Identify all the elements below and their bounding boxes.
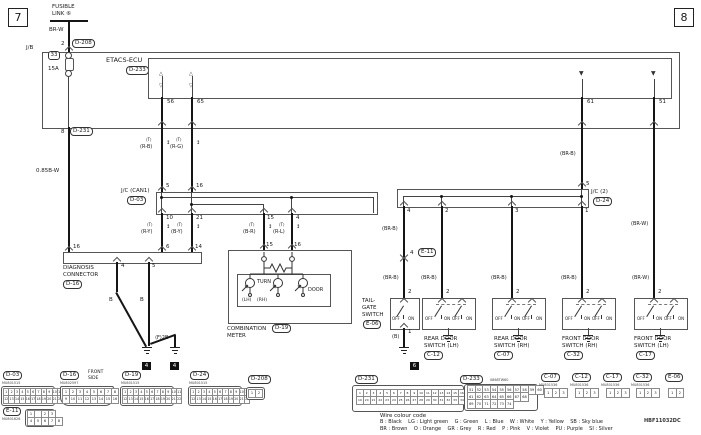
on-label: ON — [466, 317, 472, 322]
junction-dot — [290, 196, 293, 199]
junction-dot — [440, 195, 443, 198]
junction-dot — [510, 195, 513, 198]
connector-code: MU801515 — [189, 381, 207, 385]
contact-tick — [511, 315, 512, 319]
tailgate-pin-2: 2 — [408, 289, 412, 295]
wire-color-label: (R-B) — [140, 145, 152, 151]
contact-tick — [601, 315, 602, 319]
ground-stem — [448, 328, 449, 335]
jc2-pin-4: 4 — [407, 208, 411, 214]
connector-ref-d16: D-16 — [63, 280, 82, 289]
pin-grid: 45678 — [27, 417, 62, 426]
wire-color-label: B — [140, 297, 144, 303]
connector-ref-d208: D-208 — [72, 39, 95, 48]
door-wire — [581, 206, 583, 298]
fusible-link-label2: LINK ⑥ — [52, 11, 71, 17]
connector-label-e11: E-11 — [3, 407, 21, 416]
driver-output-icon: ▼ — [579, 71, 584, 77]
off-label: OFF — [495, 317, 503, 322]
on-label: ON — [678, 317, 684, 322]
twist-icon: ⟨T⟩ — [176, 138, 182, 143]
connector-label-d03: D-03 — [3, 371, 22, 380]
pin-grid: 12 — [668, 388, 683, 398]
diag-pin-5: 5 — [152, 263, 156, 269]
e11-pin-label: 4 — [410, 250, 414, 256]
connector-label-d24: D-24 — [190, 371, 209, 380]
connector-label-d231: D-231 — [355, 375, 378, 384]
pin-grid: 192021222324252627282930313233343536 — [356, 396, 478, 405]
on-label: ON — [536, 317, 542, 322]
connector-ref-c32: C-32 — [564, 351, 583, 360]
door-switch-name2: SWITCH (LH) — [424, 343, 459, 349]
door-pin-2: 2 — [446, 289, 450, 295]
can-wire — [161, 97, 163, 192]
contact-tick — [653, 315, 654, 319]
on-label: ON — [584, 317, 590, 322]
meter-circuit-graphic — [238, 252, 338, 308]
door-switch-box — [634, 298, 688, 330]
legend-line2: BR : Brown O : Orange GR : Grey R : Red … — [380, 427, 613, 433]
off-label: OFF — [592, 317, 600, 322]
connector-ref-c12: C-12 — [424, 351, 443, 360]
can-wire — [191, 97, 193, 192]
pin-grid: 1213141516171819202122 — [3, 395, 62, 404]
door-switch-name2: SWITCH (RH) — [562, 343, 598, 349]
wire-color-label: (BR-W) — [631, 222, 648, 228]
connector-ref-d03: D-03 — [127, 196, 146, 205]
pin-grid: 123 — [575, 388, 598, 398]
signal-arrow-icon: ▽ — [189, 84, 193, 89]
connector-label-c07: C-07 — [541, 373, 560, 382]
jc1-pin-21: 21 — [196, 215, 203, 221]
door-wire — [441, 206, 443, 298]
diag-pin-16: 16 — [73, 244, 80, 250]
off-label: OFF — [452, 317, 460, 322]
connector-label-d16: D-16 — [60, 371, 79, 380]
twist-icon: ⟨T⟩ — [279, 223, 285, 228]
off-label: OFF — [664, 317, 672, 322]
connector-label-d208: D-208 — [248, 375, 271, 384]
connector-code: MU801536 — [570, 383, 588, 387]
jc1-internal-bus — [162, 197, 374, 198]
legend-line1: B : Black LG : Light green G : Green L :… — [380, 420, 603, 426]
connector-label-c12: C-12 — [572, 373, 591, 382]
driver-output-icon: ▼ — [651, 71, 656, 77]
connector-code: MU801536 — [539, 383, 557, 387]
f2b-label: ⟨F⟩2B — [155, 336, 168, 342]
wire-color-label: (BR-W) — [632, 276, 649, 282]
ecu-pin-56: 56 — [167, 99, 174, 105]
tailgate-label2: GATE — [362, 305, 376, 311]
wiring-diagram-page: 7 8 FUSIBLE LINK ⑥ BR-W 2 D-208 J/B 33 1… — [0, 0, 701, 435]
twist-icon: ⟨T⟩ — [146, 138, 152, 143]
pin-grid: 1213141516171819202122 — [190, 395, 249, 404]
connector-ref-c17: C-17 — [636, 351, 655, 360]
jc1-pin-15: 15 — [267, 215, 274, 221]
doc-code: HBF11032DC — [644, 419, 681, 425]
twist-icon: ⟨T⟩ — [177, 223, 183, 228]
inline-connector-icon — [400, 257, 408, 265]
wire-color-label: (R-G) — [170, 145, 183, 151]
signal-arrow-icon: ▽ — [159, 84, 163, 89]
connector-label-c32: C-32 — [633, 373, 652, 382]
twist-span-arrow-icon: ↕ — [166, 225, 170, 231]
twist-span-arrow-icon: ↕ — [268, 225, 272, 231]
signal-arrow-icon: △ — [189, 72, 193, 77]
tailgate-pin-1: 1 — [408, 329, 412, 335]
jc2-pin-5: 5 — [586, 181, 590, 187]
ground-point-badge: 4 — [170, 362, 179, 370]
connector-code: 0868TW60 — [490, 378, 508, 382]
jc1-pin-5: 5 — [166, 183, 170, 189]
connector-ref-e06: E-06 — [363, 320, 381, 329]
junction-dot — [190, 203, 193, 206]
twist-span-arrow-icon: ↕ — [196, 141, 200, 147]
door-indicator-label: DOOR — [308, 288, 323, 294]
connector-label-c17: C-17 — [603, 373, 622, 382]
ground-stem — [588, 328, 589, 335]
connector-code: MU801515 — [2, 381, 20, 385]
ground-stem — [660, 328, 661, 335]
door-switch-name2: SWITCH (LH) — [634, 343, 669, 349]
meter-label1: COMBINATION — [227, 326, 266, 332]
connector-code: MU801536 — [601, 383, 619, 387]
page-tab-right: 8 — [674, 8, 694, 27]
page-tab-left: 7 — [8, 8, 28, 27]
connector-label-d19: D-19 — [122, 371, 141, 380]
door-switch-name2: SWITCH (RH) — [494, 343, 530, 349]
turn-indicator-label: TURN — [257, 280, 271, 286]
jb-label: J/B — [26, 45, 33, 51]
connector-ref-e11: E-11 — [418, 248, 436, 257]
pin-grid: 123 — [636, 388, 659, 398]
connector-ref-d233: D-233 — [126, 66, 149, 75]
ecu-pin-65: 65 — [197, 99, 204, 105]
pin-grid: 697071727374 — [467, 399, 513, 409]
ecu-pin-51: 51 — [659, 99, 666, 105]
junction-dot — [160, 196, 163, 199]
wire-color-label: (BR-B) — [382, 227, 398, 233]
jc2-label: J/C (2) — [591, 189, 608, 195]
door-switch-box — [492, 298, 546, 330]
pin-grid: 910111213141516 — [62, 395, 118, 404]
door-switch-name1: REAR DOOR — [424, 336, 457, 342]
jc2-pin-1: 1 — [585, 208, 589, 214]
on-label: ON — [444, 317, 450, 322]
front-side-note1: FRONT — [88, 370, 103, 375]
door-switch-box — [562, 298, 616, 330]
connector-ref-d231: D-231 — [70, 127, 93, 136]
tailgate-label3: SWITCH — [362, 312, 384, 318]
ecu-pin-61: 61 — [587, 99, 594, 105]
jc1-internal-bus2 — [192, 204, 264, 205]
etacs-ecu-label: ETACS-ECU — [106, 57, 142, 64]
jc2-box — [397, 189, 589, 208]
wire-color-label: B — [109, 297, 113, 303]
wire-085bw — [68, 127, 70, 252]
on-label: ON — [514, 317, 520, 322]
contact-tick — [673, 315, 674, 319]
pin-grid: 1213141516171819202122 — [122, 395, 181, 404]
fuse-body — [65, 58, 74, 71]
off-label: OFF — [637, 317, 645, 322]
jc1-pin-10: 10 — [166, 215, 173, 221]
connector-code: MU802597 — [60, 381, 78, 385]
wire-br-w-label: BR-W — [49, 27, 64, 33]
on-label: ON — [656, 317, 662, 322]
ground-wire-b2 — [148, 262, 150, 346]
ground-stem — [518, 328, 519, 335]
wire-color-label: (BR-B) — [383, 276, 399, 282]
connector-ref-c07: C-07 — [494, 351, 513, 360]
door-switch-box — [422, 298, 476, 330]
etacs-ecu-inner-box — [148, 58, 672, 99]
meter-label2: METER — [227, 333, 246, 339]
jc-can1-label: J/C (CAN1) — [121, 188, 150, 194]
jc2-pin-3: 3 — [515, 208, 519, 214]
off-label: OFF — [522, 317, 530, 322]
connector-label-d233: D-233 — [460, 375, 483, 384]
connector-code: MU801515 — [121, 381, 139, 385]
connector-ref-d19: D-19 — [272, 324, 291, 333]
jc1-pin-16: 16 — [196, 183, 203, 189]
twist-span-arrow-icon: ↕ — [296, 225, 300, 231]
wire-color-label: (BR-B) — [421, 276, 437, 282]
off-label: OFF — [565, 317, 573, 322]
connector-ref-d24: D-24 — [593, 197, 612, 206]
fusible-link-label: FUSIBLE — [52, 4, 75, 10]
wire-085bw-label: 0.85B-W — [36, 168, 59, 174]
wire-color-label: (B-R) — [243, 230, 256, 236]
wire-color-label: (BR-B) — [491, 276, 507, 282]
door-pin-2: 2 — [658, 289, 662, 295]
pin-grid: 123 — [606, 388, 629, 398]
door-pin-2: 2 — [586, 289, 590, 295]
ground-point-badge: 6 — [410, 362, 419, 370]
door-switch-name1: FRONT DOOR — [562, 336, 599, 342]
contact-tick — [531, 315, 532, 319]
connector-code: MU801626 — [2, 417, 20, 421]
ecu-pin-stem — [654, 79, 655, 97]
wire-color-label: (B-Y) — [171, 230, 183, 236]
fuse-rating: 15A — [48, 66, 59, 72]
front-side-note2: SIDE — [88, 376, 99, 381]
tailgate-label1: TAIL- — [362, 298, 375, 304]
wire-color-label: (R-L) — [273, 230, 285, 236]
pin-grid: 123 — [544, 388, 567, 398]
wire-color-label: (BR-B) — [561, 276, 577, 282]
turn-rh-label: (RH) — [257, 298, 267, 303]
ground-point-badge: 4 — [142, 362, 151, 370]
door-pin-2: 2 — [516, 289, 520, 295]
contact-tick — [403, 315, 404, 319]
on-label: ON — [606, 317, 612, 322]
diagnosis-label1: DIAGNOSIS — [63, 265, 94, 271]
jc2-pin-2: 2 — [445, 208, 449, 214]
wire-color-label: (B) — [392, 335, 399, 341]
pin-grid: 12 — [248, 389, 262, 398]
off-label: OFF — [425, 317, 433, 322]
pin-2-label: 2 — [61, 41, 65, 47]
jc1-pin-4: 4 — [296, 215, 300, 221]
connector-label-e06: E-06 — [665, 373, 683, 382]
tailgate-ground-wire — [403, 328, 405, 347]
jb-out-pin: 8 — [61, 129, 65, 135]
twist-icon: ⟨T⟩ — [147, 223, 153, 228]
fuse-terminal-bottom — [65, 70, 72, 77]
twist-icon: ⟨T⟩ — [249, 223, 255, 228]
ecu-pin-stem — [582, 79, 583, 97]
door-switch-name1: FRONT DOOR — [634, 336, 671, 342]
junction-dot — [580, 195, 583, 198]
signal-arrow-icon: △ — [159, 72, 163, 77]
twist-span-arrow-icon: ↕ — [196, 225, 200, 231]
jc1-internal — [373, 197, 374, 213]
diagnosis-connector-box — [63, 252, 202, 264]
fuse-number: 33 — [48, 51, 60, 60]
on-label: ON — [408, 317, 414, 322]
f2b-branch-wire — [174, 335, 176, 347]
diag-pin-4: 4 — [121, 263, 125, 269]
jc2-internal-bus — [404, 196, 582, 197]
connector-code: MU801536 — [631, 383, 649, 387]
ground-wire-b — [116, 262, 118, 292]
contact-tick — [581, 315, 582, 319]
wire-color-label: (BR-B) — [560, 152, 576, 158]
wire-color-label: (R-Y) — [141, 230, 152, 236]
contact-tick — [441, 315, 442, 319]
off-label: OFF — [392, 317, 400, 322]
door-switch-name1: REAR DOOR — [494, 336, 527, 342]
door-wire — [511, 206, 513, 298]
contact-tick — [461, 315, 462, 319]
door-switch-feed-wire — [581, 97, 583, 189]
diagnosis-label2: CONNECTOR — [63, 272, 98, 278]
turn-lh-label: (LH) — [242, 298, 251, 303]
